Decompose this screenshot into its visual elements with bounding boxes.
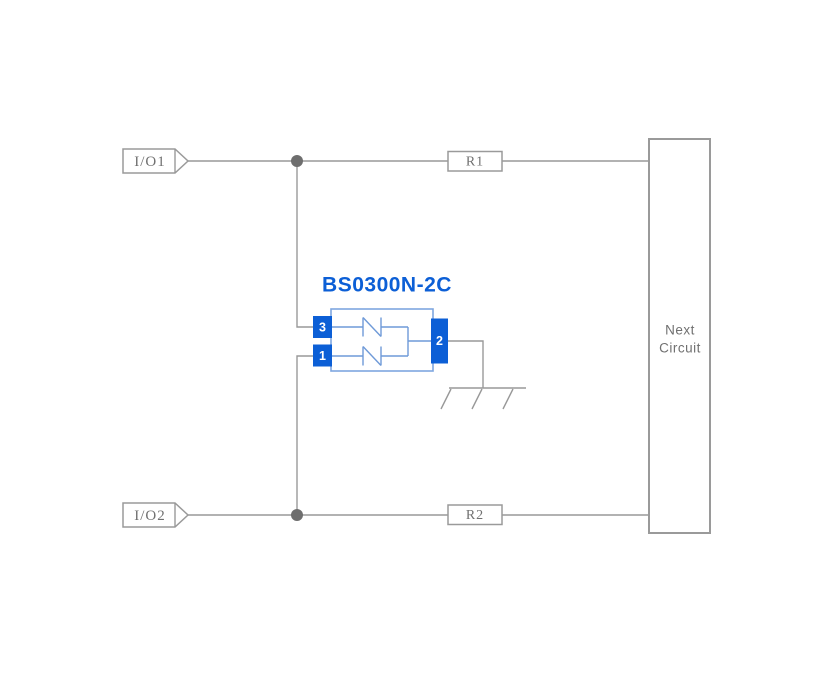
io1-tag: I/O1 [123,149,188,173]
junction-dot-bottom [291,509,303,521]
resistor-r1: R1 [448,152,502,172]
pin-2: 2 [431,319,448,364]
wire-ground-lead [448,341,483,388]
io2-label: I/O2 [134,508,166,524]
component-body [331,309,433,371]
pin-1: 1 [313,345,332,367]
next-circuit-block: Next Circuit [649,139,710,533]
tvs-component: BS0300N-2C 3 1 [313,274,452,372]
circuit-diagram: I/O1 I/O2 R1 R2 Next Circuit BS0300N-2C [0,0,832,675]
resistor-r1-label: R1 [466,155,484,170]
pin-3: 3 [313,316,332,338]
io2-tag: I/O2 [123,503,188,527]
wire-branch-top [297,161,313,327]
pin-3-label: 3 [319,321,326,335]
ground-icon [441,388,526,409]
pin-1-label: 1 [319,349,326,363]
component-title: BS0300N-2C [322,274,452,297]
resistor-r2-label: R2 [466,508,484,523]
io1-label: I/O1 [134,154,166,170]
resistor-r2: R2 [448,505,502,525]
junction-dot-top [291,155,303,167]
next-circuit-label-line1: Next [665,323,695,338]
next-circuit-label-line2: Circuit [659,341,701,356]
pin-2-label: 2 [436,334,443,348]
wire-branch-bottom [297,356,313,515]
